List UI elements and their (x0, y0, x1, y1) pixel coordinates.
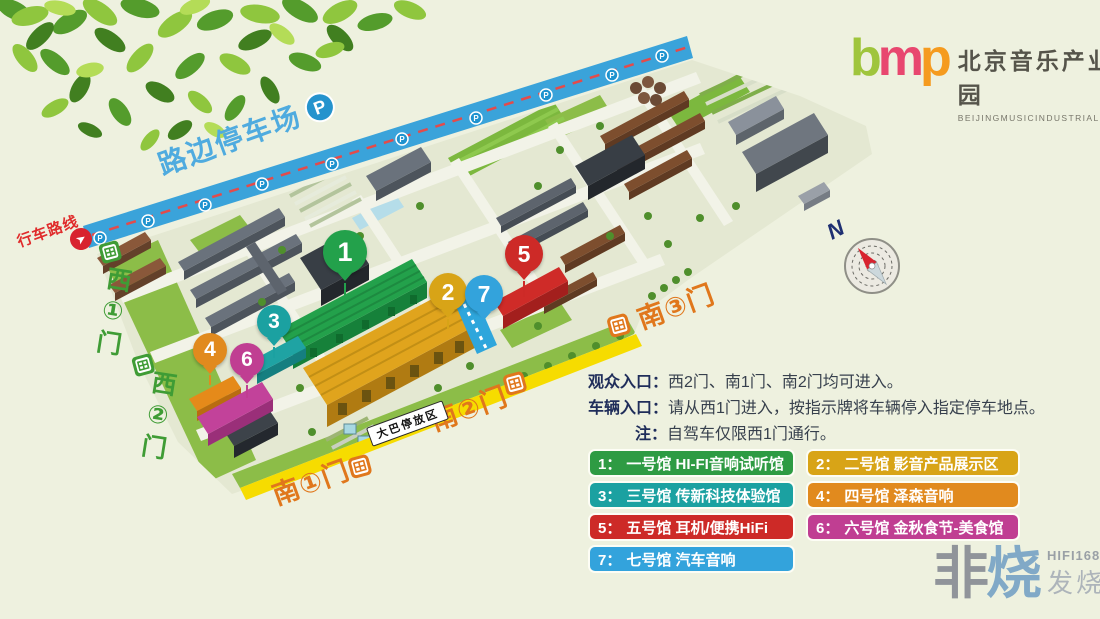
park-logo: bmp 北京音乐产业园 BEIJINGMUSICINDUSTRIALPARK (850, 34, 1100, 123)
logo-subtitle: BEIJINGMUSICINDUSTRIALPARK (958, 113, 1100, 123)
svg-text:P: P (202, 201, 208, 210)
svg-text:P: P (609, 71, 615, 80)
logo-bmp-mark: bmp (850, 34, 948, 82)
watermark-name: 发烧网 (1047, 563, 1100, 600)
legend-hall-5: 5：五号馆 耳机/便携HiFi (588, 513, 795, 541)
logo-title: 北京音乐产业园 (958, 42, 1100, 110)
svg-text:N: N (823, 214, 850, 244)
info-line-vehicles: 车辆入口：请从西1门进入，按指示牌将车辆停入指定停车地点。 (588, 396, 1068, 422)
svg-text:P: P (659, 52, 665, 61)
legend-hall-7: 7：七号馆 汽车音响 (588, 545, 795, 573)
map-marker-1: 1 (323, 230, 367, 274)
info-line-visitors: 观众入口：西2门、南1门、南2门均可进入。 (588, 370, 1068, 396)
legend-hall-2: 2：二号馆 影音产品展示区 (806, 449, 1020, 477)
marker-7-leader (483, 321, 485, 329)
entrance-info: 观众入口：西2门、南1门、南2门均可进入。 车辆入口：请从西1门进入，按指示牌将… (588, 370, 1068, 448)
marker-1-leader (344, 283, 346, 300)
legend-hall-6: 6：六号馆 金秋食节-美食馆 (806, 513, 1020, 541)
svg-text:P: P (259, 180, 265, 189)
watermark-glyph-2: 烧 (986, 546, 1042, 602)
svg-text:P: P (399, 135, 405, 144)
legend-hall-3: 3：三号馆 传新科技体验馆 (588, 481, 795, 509)
svg-text:P: P (329, 160, 335, 169)
marker-2-leader (447, 319, 449, 329)
marker-4-leader (209, 375, 211, 385)
marker-3-leader (273, 347, 275, 358)
watermark-glyph-1: 非 (933, 546, 989, 602)
legend-hall-4: 4：四号馆 泽森音响 (806, 481, 1020, 509)
compass: N (823, 214, 899, 293)
marker-6-leader (246, 385, 248, 398)
map-marker-5: 5 (505, 235, 543, 273)
svg-text:P: P (543, 91, 549, 100)
svg-text:P: P (97, 234, 103, 243)
svg-text:P: P (473, 114, 479, 123)
watermark-site: HIFI168.com (1047, 548, 1100, 563)
map-marker-6: 6 (230, 343, 264, 377)
map-marker-3: 3 (257, 305, 291, 339)
map-marker-7: 7 (465, 275, 503, 313)
map-marker-2: 2 (429, 273, 467, 311)
marker-5-leader (523, 281, 525, 297)
legend-hall-1: 1：一号馆 HI-FI音响试听馆 (588, 449, 795, 477)
svg-text:P: P (145, 217, 151, 226)
info-line-note: 注：自驾车仅限西1门通行。 (588, 422, 1068, 448)
hifi168-watermark: 非 烧 HIFI168.com 发烧网 (933, 546, 1100, 602)
map-marker-4: 4 (193, 333, 227, 367)
